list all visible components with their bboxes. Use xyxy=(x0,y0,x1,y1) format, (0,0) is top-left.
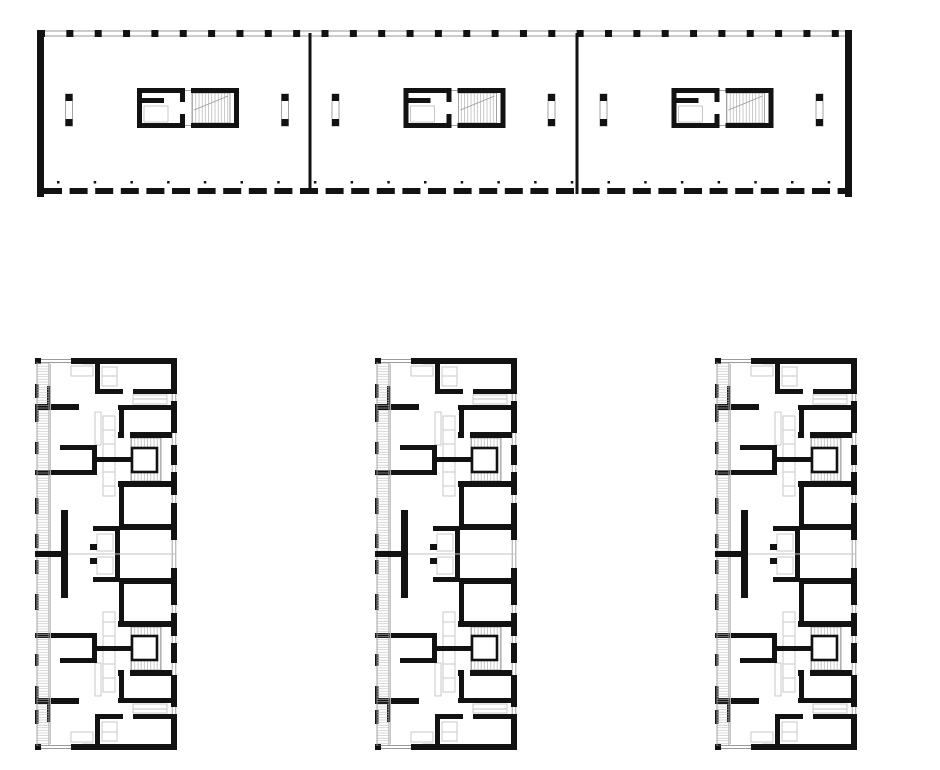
tower-plan-upper-half xyxy=(35,358,177,554)
ground-plan-core-bay-3 xyxy=(600,88,823,128)
tower-plan-lower-half xyxy=(35,554,177,750)
tower-floor-plan-1 xyxy=(35,358,177,750)
tower-plan-lower-half xyxy=(715,554,857,750)
ground-plan-core-bay-1 xyxy=(66,88,289,128)
ground-plan-core-bay-2 xyxy=(332,88,555,128)
tower-plan-upper-half xyxy=(375,358,517,554)
tower-plan-upper-half xyxy=(715,358,857,554)
tower-floor-plan-2 xyxy=(375,358,517,750)
architectural-drawing-sheet xyxy=(0,0,940,770)
floor-plan-canvas xyxy=(0,0,940,770)
tower-floor-plan-3 xyxy=(715,358,857,750)
tower-plan-lower-half xyxy=(375,554,517,750)
ground-floor-plan xyxy=(37,30,852,197)
